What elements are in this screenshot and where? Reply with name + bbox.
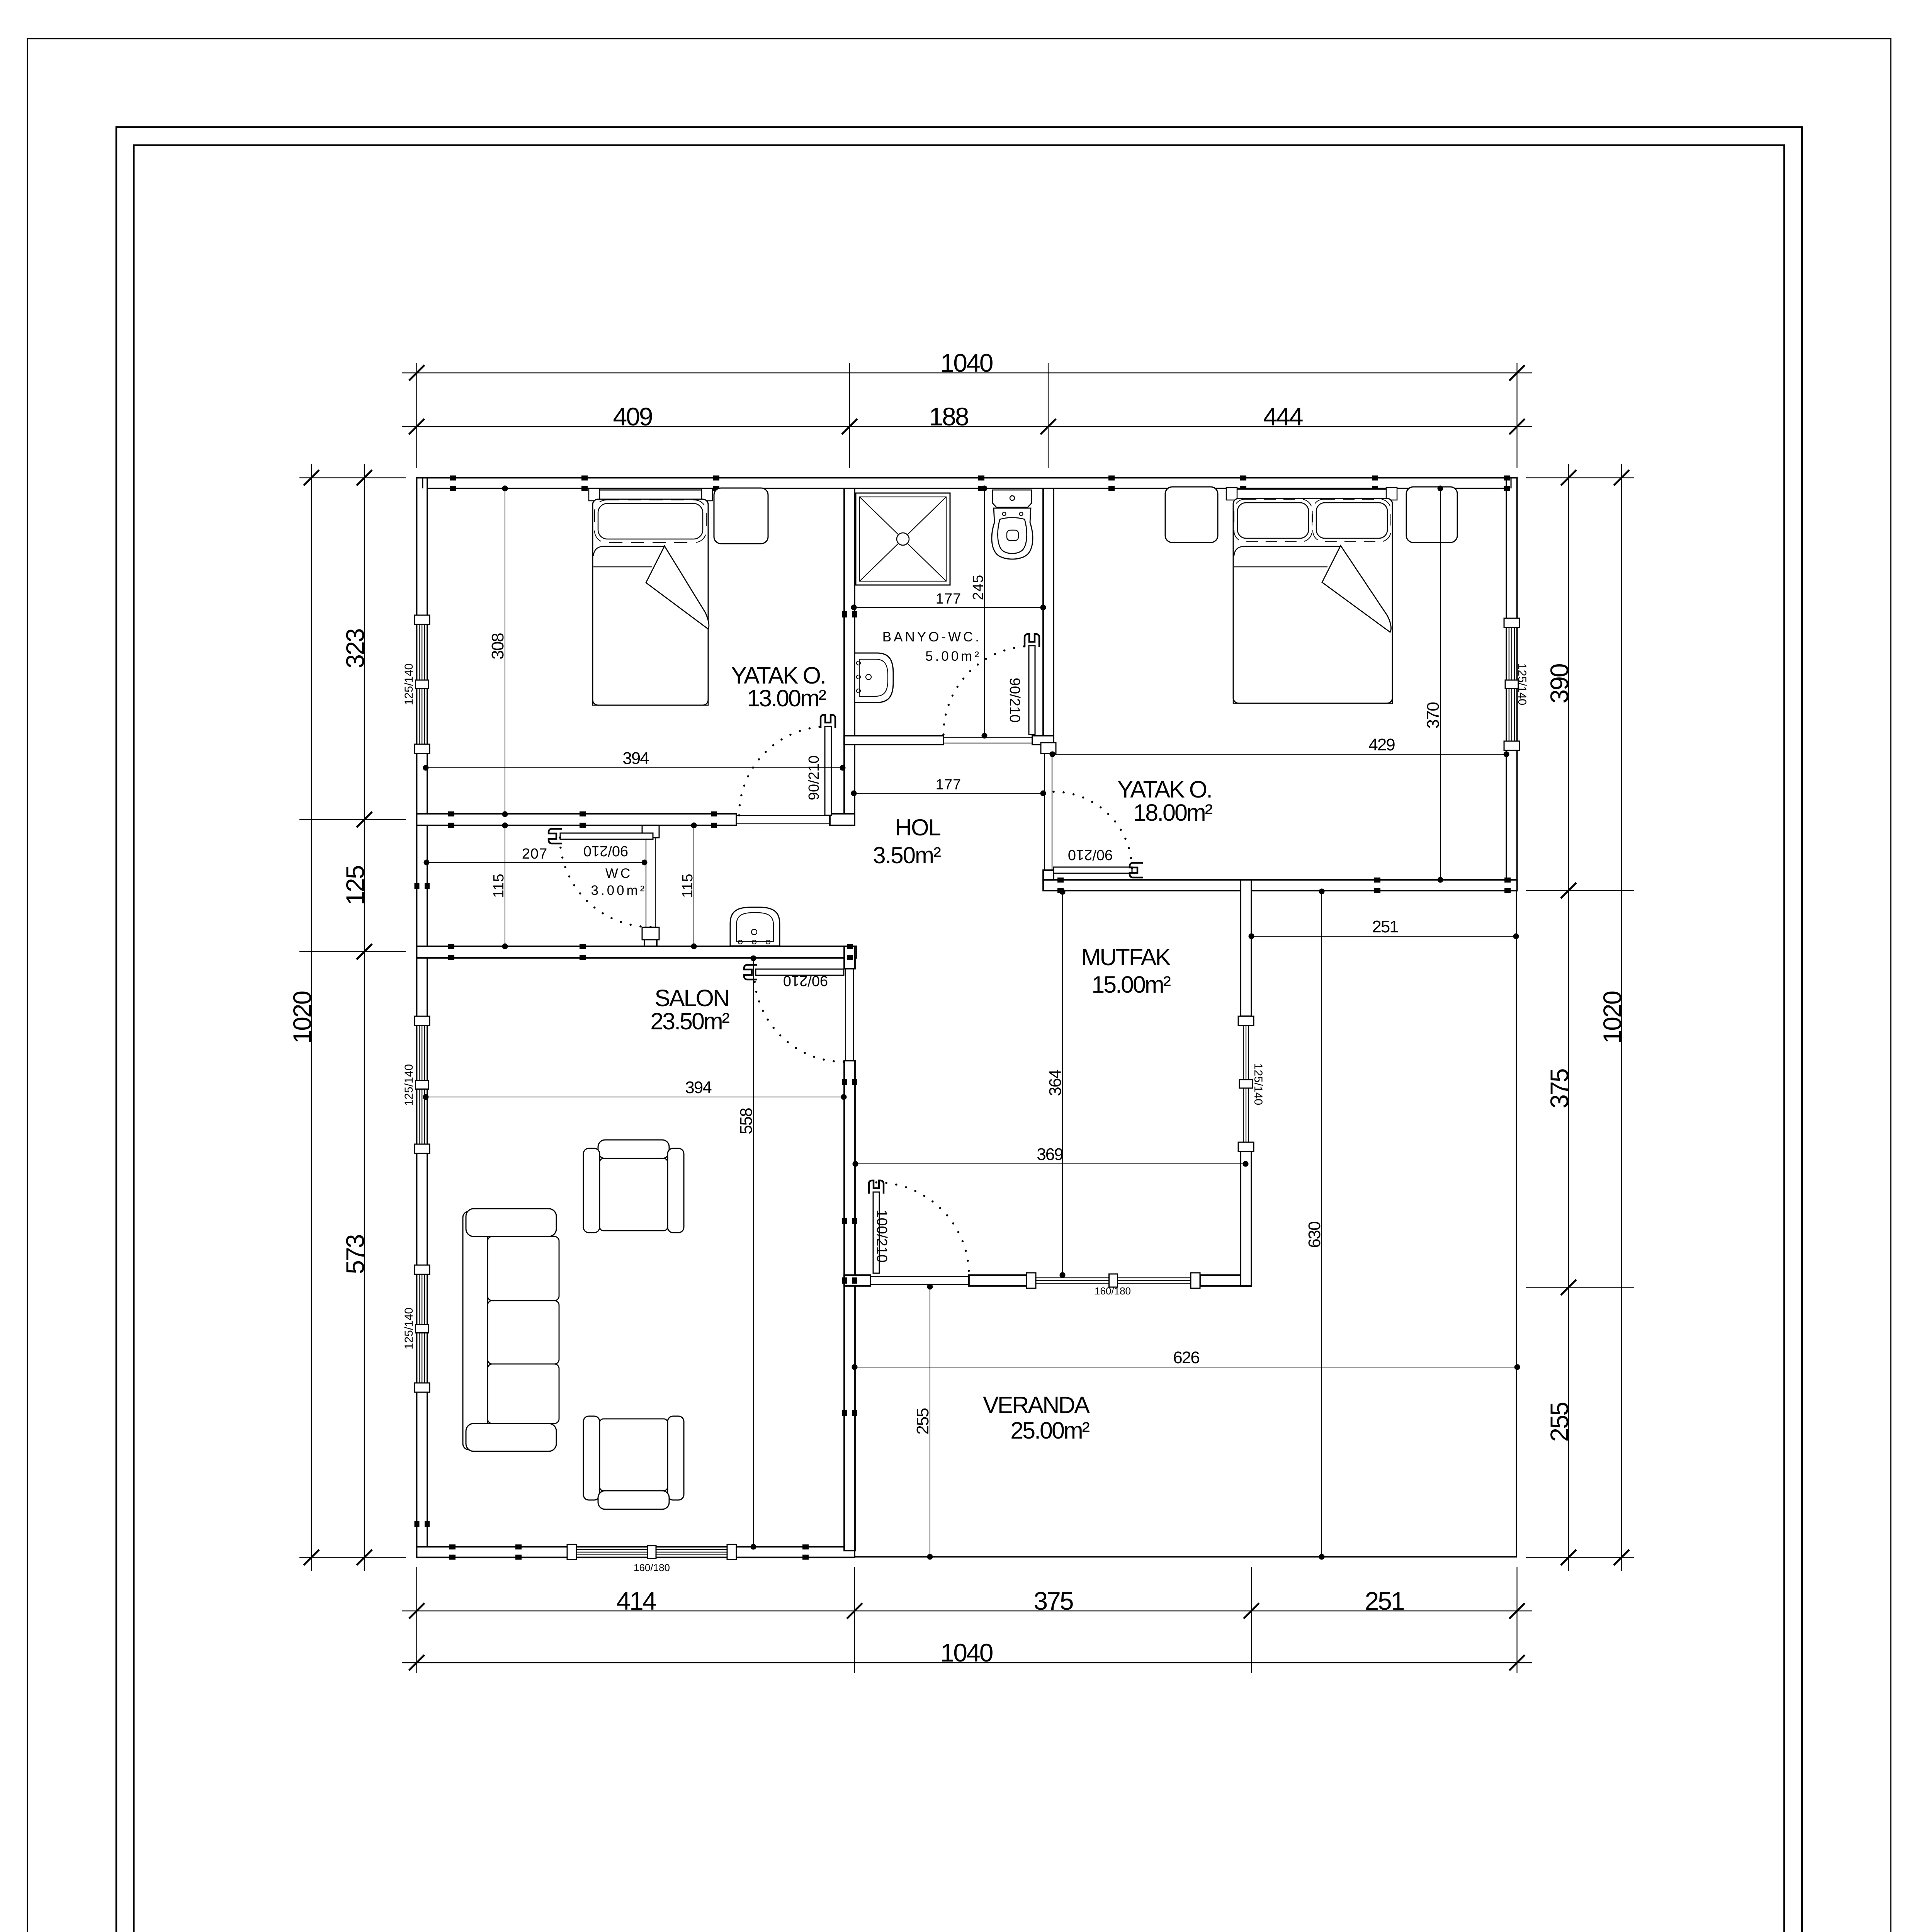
- svg-text:SALON: SALON: [654, 985, 729, 1011]
- svg-text:MUTFAK: MUTFAK: [1081, 944, 1171, 970]
- svg-text:125/140: 125/140: [1516, 663, 1528, 705]
- svg-text:160/180: 160/180: [1095, 1285, 1131, 1297]
- svg-text:13.00m²: 13.00m²: [747, 685, 826, 711]
- svg-text:394: 394: [685, 1078, 712, 1097]
- svg-text:125/140: 125/140: [403, 1064, 415, 1106]
- svg-text:1040: 1040: [940, 1638, 993, 1667]
- svg-text:364: 364: [1046, 1070, 1065, 1096]
- svg-text:1020: 1020: [1598, 991, 1627, 1044]
- svg-text:188: 188: [929, 402, 968, 431]
- svg-text:115: 115: [491, 873, 507, 898]
- svg-text:375: 375: [1545, 1069, 1574, 1108]
- svg-text:308: 308: [488, 633, 507, 660]
- svg-text:251: 251: [1372, 917, 1398, 936]
- svg-text:25.00m²: 25.00m²: [1010, 1417, 1090, 1444]
- svg-text:177: 177: [936, 777, 961, 793]
- svg-text:409: 409: [613, 402, 652, 431]
- svg-text:558: 558: [737, 1108, 756, 1134]
- svg-text:90/210: 90/210: [806, 755, 822, 800]
- svg-text:160/180: 160/180: [634, 1562, 670, 1573]
- svg-text:414: 414: [616, 1587, 656, 1615]
- svg-text:323: 323: [341, 629, 369, 668]
- svg-text:394: 394: [622, 749, 649, 768]
- svg-text:HOL: HOL: [895, 815, 941, 840]
- svg-text:90/210: 90/210: [1068, 847, 1113, 863]
- svg-text:573: 573: [341, 1235, 369, 1274]
- svg-text:23.50m²: 23.50m²: [650, 1008, 729, 1034]
- svg-text:369: 369: [1037, 1145, 1063, 1164]
- svg-text:VERANDA: VERANDA: [983, 1392, 1090, 1418]
- svg-text:207: 207: [522, 846, 547, 862]
- svg-text:444: 444: [1263, 402, 1302, 431]
- svg-text:90/210: 90/210: [783, 973, 828, 989]
- svg-text:100/210: 100/210: [874, 1209, 890, 1262]
- svg-text:125/140: 125/140: [403, 1308, 415, 1349]
- svg-text:BANYO-WC.: BANYO-WC.: [882, 629, 981, 645]
- svg-text:255: 255: [913, 1408, 932, 1435]
- svg-text:125/140: 125/140: [403, 663, 415, 705]
- svg-text:375: 375: [1033, 1587, 1073, 1615]
- svg-text:1020: 1020: [288, 991, 316, 1044]
- svg-text:1040: 1040: [940, 349, 993, 377]
- svg-text:245: 245: [970, 575, 986, 600]
- svg-text:90/210: 90/210: [583, 843, 628, 859]
- svg-text:125/140: 125/140: [1252, 1063, 1265, 1105]
- svg-text:WC: WC: [605, 866, 632, 881]
- svg-text:251: 251: [1365, 1587, 1404, 1615]
- svg-text:370: 370: [1424, 702, 1443, 729]
- svg-text:15.00m²: 15.00m²: [1091, 971, 1171, 998]
- svg-text:429: 429: [1368, 735, 1395, 754]
- svg-text:115: 115: [680, 873, 696, 898]
- svg-text:18.00m²: 18.00m²: [1133, 799, 1212, 826]
- svg-text:630: 630: [1305, 1222, 1324, 1248]
- svg-text:390: 390: [1545, 664, 1574, 703]
- svg-text:626: 626: [1173, 1348, 1199, 1367]
- svg-text:3.50m²: 3.50m²: [873, 842, 941, 868]
- svg-text:5.00m²: 5.00m²: [925, 649, 981, 664]
- svg-text:125: 125: [341, 866, 369, 905]
- svg-text:3.00m²: 3.00m²: [591, 883, 647, 898]
- svg-text:90/210: 90/210: [1006, 678, 1023, 723]
- svg-text:YATAK O.: YATAK O.: [731, 662, 825, 689]
- svg-text:YATAK O.: YATAK O.: [1117, 776, 1212, 803]
- svg-text:255: 255: [1545, 1403, 1574, 1442]
- svg-text:177: 177: [936, 591, 961, 607]
